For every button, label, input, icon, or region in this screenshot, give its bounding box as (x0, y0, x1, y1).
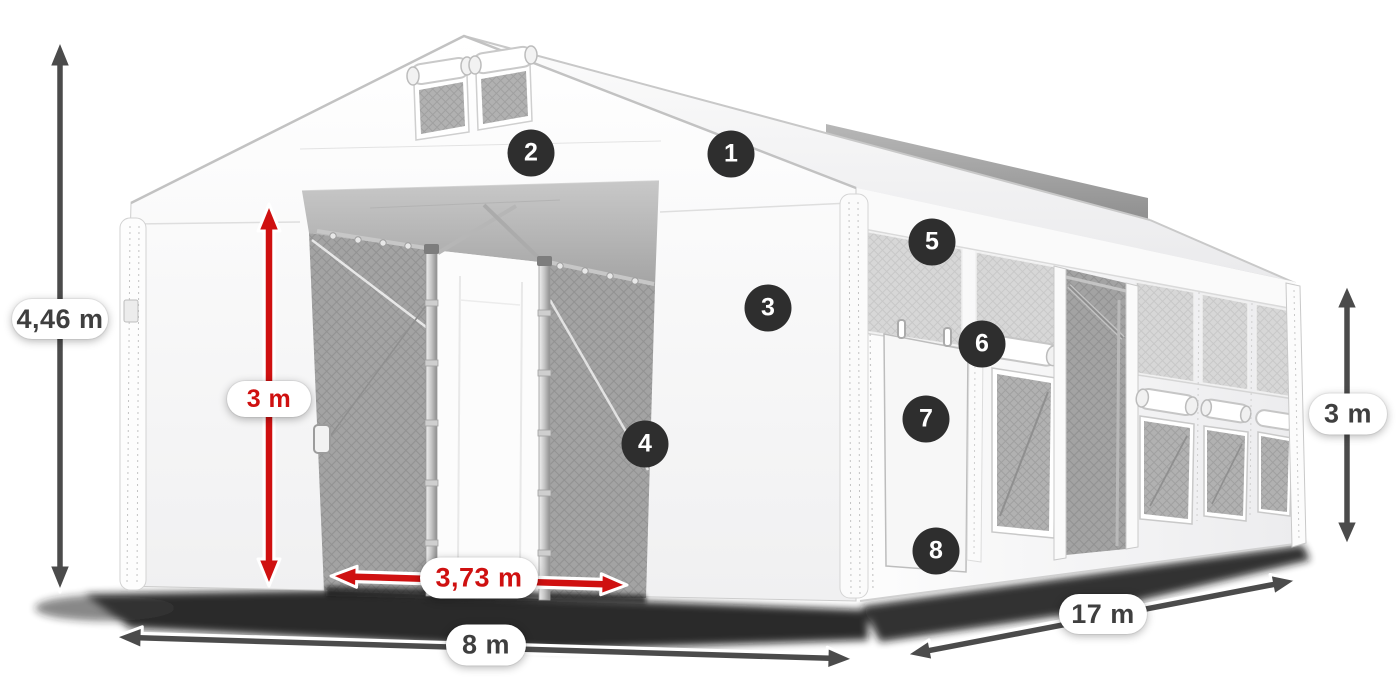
gable-window-left (407, 57, 473, 140)
gable-window-right (469, 45, 537, 130)
callout-badge-1: 1 (708, 131, 755, 178)
door-pole-right (537, 256, 552, 600)
door-pole-left (424, 244, 439, 596)
interior-mesh-left (309, 233, 433, 595)
dimension-front-width-label: 8 m (446, 625, 526, 666)
door-hook (944, 328, 951, 346)
callout-badge-3: 3 (745, 285, 792, 332)
side-open-section (1054, 266, 1138, 560)
callout-badge-7: 7 (903, 396, 950, 443)
callout-badge-8: 8 (913, 528, 960, 575)
tent-dimension-diagram: 4,46 m 3 m 3,73 m 8 m 17 m 3 m 1 2 3 4 5… (0, 0, 1400, 700)
side-window-2 (1135, 387, 1199, 524)
front-door-interior (302, 181, 659, 604)
callout-badge-6: 6 (959, 321, 1006, 368)
front-left-corner-trim (120, 218, 146, 590)
wall-strap (967, 348, 983, 562)
dimension-side-height-label: 3 m (1309, 394, 1387, 435)
door-handle (314, 425, 330, 453)
door-hook (898, 320, 905, 338)
tent-illustration (0, 0, 1400, 700)
callout-badge-5: 5 (909, 219, 956, 266)
callout-badge-4: 4 (622, 421, 669, 468)
dimension-total-height-label: 4,46 m (12, 299, 108, 339)
dimension-inner-height-label: 3 m (227, 381, 311, 417)
side-window-3 (1200, 398, 1252, 521)
callout-badge-2: 2 (508, 130, 555, 177)
dimension-door-width-label: 3,73 m (420, 558, 538, 599)
front-right-corner-trim (840, 194, 868, 598)
dimension-length-label: 17 m (1059, 594, 1147, 634)
wall-buckle (124, 300, 138, 322)
